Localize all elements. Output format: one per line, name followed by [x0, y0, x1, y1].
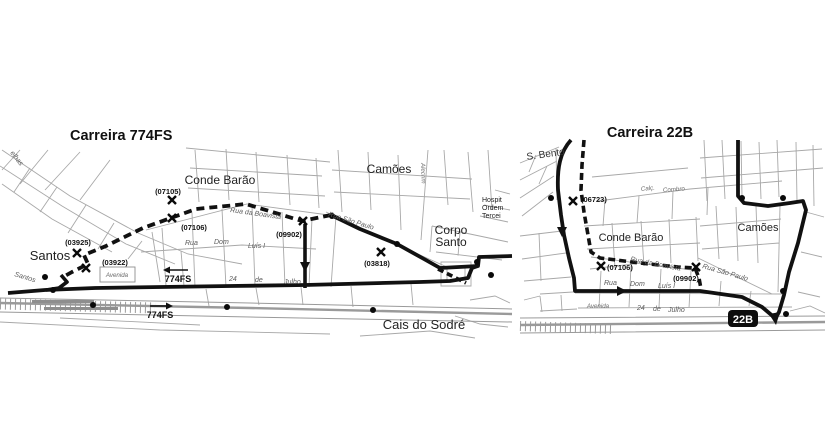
- stop-x-marker-06723: [569, 197, 577, 205]
- place-label-camoes: Camões: [738, 222, 779, 234]
- railway-22b: [520, 316, 825, 333]
- station-platform: [44, 307, 118, 310]
- stop-code-07106: (07106): [607, 263, 633, 272]
- stop-code-03818: (03818): [364, 259, 390, 268]
- place-label-conde-barao: Conde Barão: [185, 173, 256, 187]
- stop-dot: [224, 304, 230, 310]
- route-badge-22b: 22B: [728, 310, 758, 327]
- street-label-rua: Rua: [185, 240, 198, 247]
- stop-dot: [739, 195, 745, 201]
- stop-x-marker-03925: [73, 249, 81, 257]
- stop-code-06723: (06723): [581, 195, 607, 204]
- map-22b: Carreira 22B: [520, 125, 825, 333]
- stop-dot: [474, 259, 480, 265]
- stop-dots-22b: [548, 195, 789, 317]
- street-label-24: 24: [228, 276, 237, 283]
- map-title-774fs: Carreira 774FS: [70, 128, 173, 144]
- stop-dot: [488, 272, 494, 278]
- street-label-boavista: Rua da Boavista: [230, 207, 282, 221]
- stop-code-03922: (03922): [102, 258, 128, 267]
- west-arrow-icon: [163, 267, 170, 274]
- stop-dot: [548, 195, 554, 201]
- railway-black-line: [520, 322, 825, 325]
- street-label-sao-paulo: Rua São Paulo: [701, 263, 748, 283]
- stop-x-marker-07106: [597, 262, 605, 270]
- street-label-julho: Julho: [283, 279, 301, 286]
- route-arrow-east: [617, 286, 627, 296]
- map-774fs: Carreira 774FS: [0, 128, 512, 338]
- route-774fs-solid-main: [8, 256, 512, 293]
- street-label-julho: Julho: [667, 307, 685, 314]
- route-arrow-down: [300, 262, 310, 272]
- stop-dot: [394, 241, 400, 247]
- street-label-dom: Dom: [214, 239, 229, 246]
- direction-label-east: 774FS: [147, 310, 174, 320]
- place-label-cais-do-sodre: Cais do Sodré: [383, 317, 465, 332]
- street-label-calcada: Calç.: [640, 185, 655, 193]
- place-label-santo: Santo: [435, 235, 467, 249]
- street-label-rua: Rua: [604, 280, 617, 287]
- street-label-sao-paulo: Rua São Paulo: [327, 211, 374, 231]
- street-label-santos-street: Santos: [13, 271, 36, 284]
- station-platform: [32, 300, 94, 303]
- stop-dot: [780, 195, 786, 201]
- east-arrow-icon: [166, 303, 173, 310]
- place-label-conde-barao: Conde Barão: [599, 232, 664, 244]
- street-lines-sbento: [520, 147, 577, 312]
- street-label-luis: Luís I: [248, 243, 265, 250]
- stop-x-marker-03818: [377, 248, 385, 256]
- stop-dot: [783, 311, 789, 317]
- street-label-boavista: Rua da Boavista: [630, 256, 682, 273]
- street-label-luis: Luís I: [658, 283, 675, 290]
- street-lines-east-edge: [790, 212, 825, 313]
- street-label-velhas: elhas: [8, 150, 24, 168]
- stop-code-09902: (09902): [276, 230, 302, 239]
- stop-dot: [50, 287, 56, 293]
- stop-dot: [370, 307, 376, 313]
- street-label-de: de: [653, 306, 661, 313]
- direction-label-west: 774FS: [165, 274, 192, 284]
- maps-canvas: Carreira 774FS: [0, 0, 825, 430]
- place-label-camoes: Camões: [367, 162, 412, 176]
- map-title-22b: Carreira 22B: [607, 125, 693, 141]
- street-label-dom: Dom: [630, 281, 645, 288]
- direction-west-774fs: 774FS: [163, 267, 191, 285]
- street-label-avenida: Avenida: [105, 272, 129, 279]
- bus-route-maps-figure: Carreira 774FS: [0, 0, 825, 430]
- stop-dot: [780, 288, 786, 294]
- place-label-santos: Santos: [30, 248, 71, 263]
- street-lines-combro: [592, 168, 782, 226]
- stop-code-09902: (09902): [673, 274, 699, 283]
- place-label-hospital-3: Tercei: [482, 213, 501, 220]
- place-label-hospital-1: Hospit: [482, 197, 502, 204]
- street-label-avenida: Avenida: [586, 303, 610, 310]
- stop-dot: [90, 302, 96, 308]
- stop-dot: [42, 274, 48, 280]
- stop-code-03925: (03925): [65, 238, 91, 247]
- street-label-24: 24: [636, 305, 645, 312]
- route-badge-label: 22B: [733, 314, 753, 326]
- stop-code-07105: (07105): [155, 187, 181, 196]
- railway-hatch-band: [520, 326, 612, 329]
- stop-code-07106: (07106): [181, 223, 207, 232]
- street-label-alecrim: Alecrim: [419, 162, 427, 184]
- street-label-de: de: [255, 277, 263, 284]
- street-label-combro: Combro: [663, 185, 686, 194]
- place-label-hospital-2: Ordem: [482, 205, 504, 212]
- stop-x-marker-07105: [168, 196, 176, 204]
